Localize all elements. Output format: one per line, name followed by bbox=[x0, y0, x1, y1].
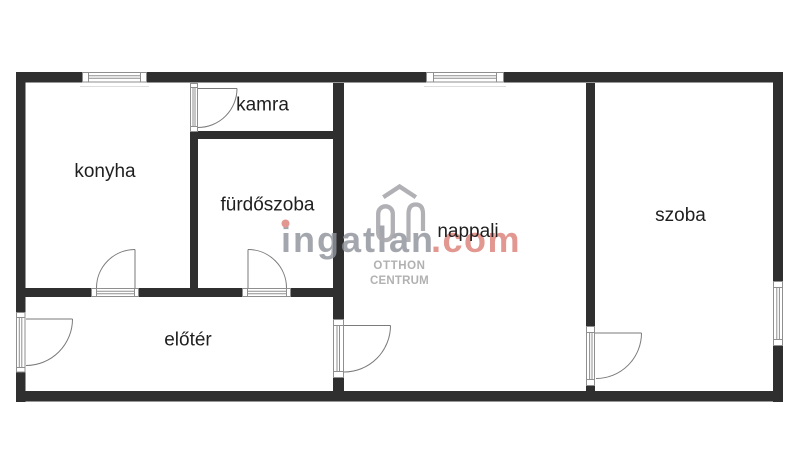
svg-text:konyha: konyha bbox=[74, 161, 136, 182]
svg-text:fürdőszoba: fürdőszoba bbox=[220, 195, 314, 216]
svg-text:szoba: szoba bbox=[655, 205, 706, 226]
svg-text:ingatlan: ingatlan bbox=[281, 219, 435, 260]
svg-text:nappali: nappali bbox=[437, 221, 498, 242]
svg-text:előtér: előtér bbox=[164, 330, 212, 351]
svg-text:CENTRUM: CENTRUM bbox=[370, 275, 429, 287]
svg-text:OTTHON: OTTHON bbox=[373, 260, 425, 272]
svg-text:kamra: kamra bbox=[236, 95, 289, 116]
